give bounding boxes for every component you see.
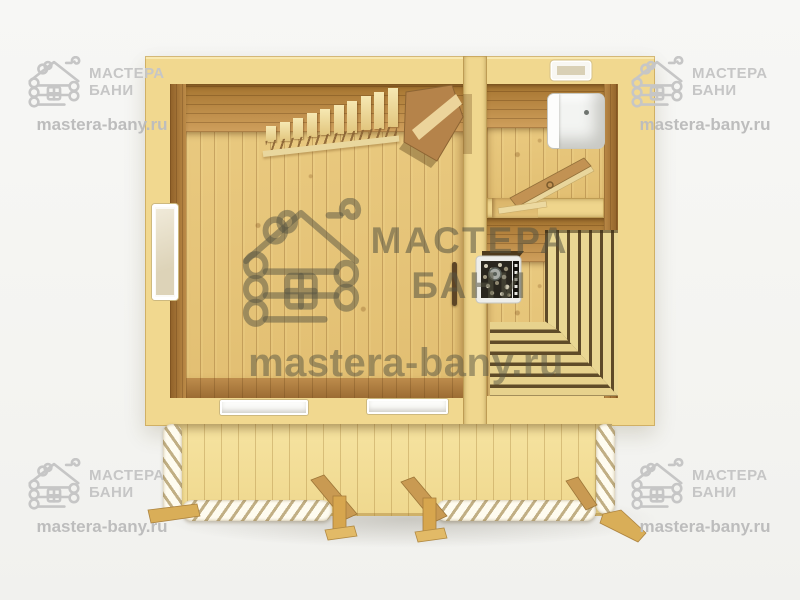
brand-line2: БАНИ — [692, 82, 737, 99]
log-cabin-icon — [26, 56, 82, 108]
log-cabin-icon — [629, 56, 685, 108]
brand-text: МАСТЕРА БАНИ — [692, 65, 768, 100]
rope-log-beam-left — [182, 500, 332, 521]
brand-url: mastera-bany.ru — [629, 517, 781, 537]
watermark-bottom-right: МАСТЕРА БАНИ mastera-bany.ru — [629, 458, 781, 537]
stair-tread — [374, 92, 384, 129]
brand-line2: БАНИ — [89, 82, 134, 99]
stair-tread — [320, 109, 330, 135]
main-room-doorway — [463, 94, 472, 154]
window-bottom-2 — [367, 399, 448, 414]
brand-url: mastera-bany.ru — [629, 115, 781, 135]
rope-log-beam-right — [436, 500, 596, 521]
shower-tray — [548, 94, 604, 148]
washroom-sauna-doorway — [492, 198, 538, 218]
brand-line1: МАСТЕРА — [371, 220, 570, 261]
brand-url: mastera-bany.ru — [26, 517, 178, 537]
watermark-center-brand: МАСТЕРА БАНИ — [356, 218, 584, 308]
log-cabin-icon — [238, 198, 364, 328]
brand-line2: БАНИ — [411, 265, 528, 306]
watermark-bottom-left: МАСТЕРА БАНИ mastera-bany.ru — [26, 458, 178, 537]
window-pane — [557, 66, 585, 75]
brand-line1: МАСТЕРА — [692, 65, 768, 82]
window-bottom-1 — [220, 400, 308, 415]
stair-tread — [388, 88, 398, 127]
watermark-top-right: МАСТЕРА БАНИ mastera-bany.ru — [629, 56, 781, 135]
brand-text: МАСТЕРА БАНИ — [89, 467, 165, 502]
banya-floorplan-render: МАСТЕРА БАНИ mastera-bany.ru МАСТЕРА БАН… — [0, 0, 800, 600]
brand-text: МАСТЕРА БАНИ — [89, 65, 165, 100]
watermark-center-url: mastera-bany.ru — [238, 341, 574, 386]
window-left-wall — [152, 204, 178, 300]
rope-log-column-right — [596, 424, 615, 514]
log-cabin-icon — [26, 458, 82, 510]
brand-line2: БАНИ — [89, 484, 134, 501]
brand-text: МАСТЕРА БАНИ — [692, 467, 768, 502]
stair-tread — [347, 101, 357, 133]
watermark-top-left: МАСТЕРА БАНИ mastera-bany.ru — [26, 56, 178, 135]
log-cabin-icon — [629, 458, 685, 510]
brand-line2: БАНИ — [692, 484, 737, 501]
brand-line1: МАСТЕРА — [89, 65, 165, 82]
brand-line1: МАСТЕРА — [89, 467, 165, 484]
stair-tread — [307, 113, 317, 137]
brand-url: mastera-bany.ru — [26, 115, 178, 135]
stair-tread — [334, 105, 344, 134]
window-top-wall — [552, 62, 590, 79]
drain-icon — [584, 110, 589, 115]
stair-tread — [361, 96, 371, 130]
brand-line1: МАСТЕРА — [692, 467, 768, 484]
window-pane — [156, 209, 174, 295]
